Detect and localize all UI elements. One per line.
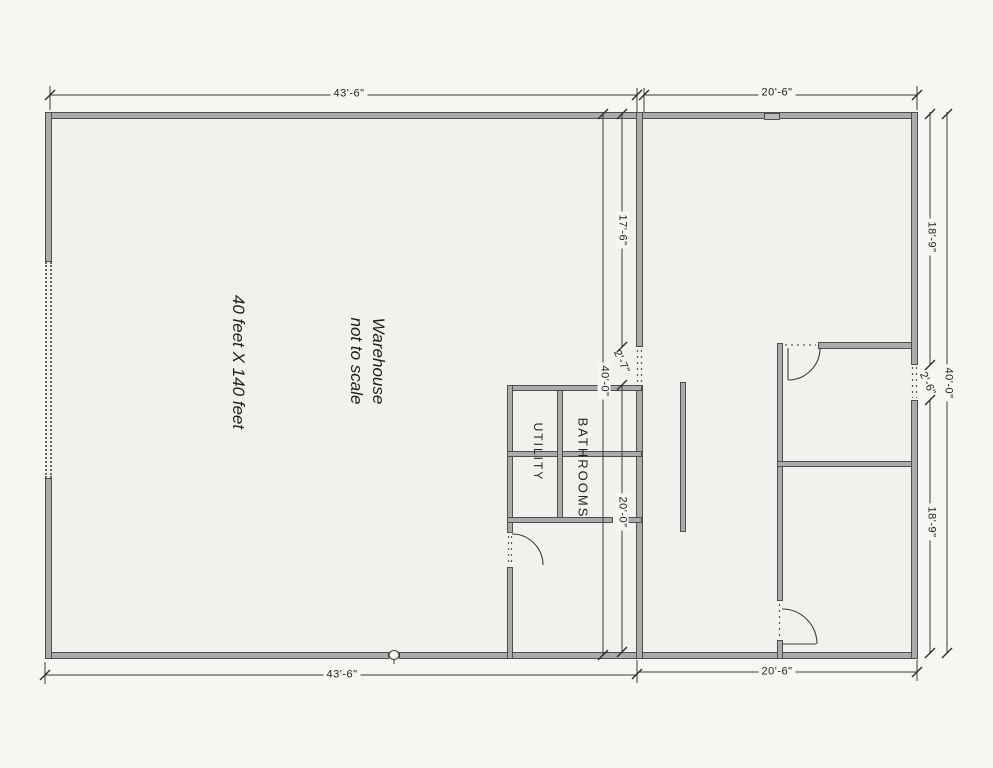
panel-marker xyxy=(764,113,780,120)
wall-office-vertical xyxy=(777,343,783,601)
wall-bathroom-top xyxy=(507,385,642,391)
dim-label-center-lower: 20'-0" xyxy=(616,493,629,530)
wall-exterior-bottom-right xyxy=(399,652,918,659)
wall-office-vertical-stub xyxy=(777,640,783,659)
wall-office-middle xyxy=(777,461,912,467)
wall-exterior-right-upper xyxy=(911,112,918,365)
warehouse-title-block: Warehouse not to scale xyxy=(345,318,389,405)
warehouse-size-label: 40 feet X 140 feet xyxy=(227,295,249,429)
warehouse-title: Warehouse xyxy=(367,318,389,405)
wall-exterior-left-upper xyxy=(45,112,52,262)
wall-exterior-left-opening xyxy=(45,262,52,478)
dim-label-center-upper: 17'-6" xyxy=(616,211,629,248)
dim-label-bottom-left: 43'-6" xyxy=(323,669,360,682)
wall-exterior-left-lower xyxy=(45,478,52,659)
wall-corridor-freestanding xyxy=(680,382,686,532)
wall-exterior-right-lower xyxy=(911,400,918,659)
wall-exterior-bottom-left xyxy=(45,652,389,659)
warehouse-subtitle: not to scale xyxy=(345,318,367,405)
dim-label-top-right: 20'-6" xyxy=(758,87,795,100)
wall-bathroom-left-upper xyxy=(507,385,513,533)
dim-label-bottom-right: 20'-6" xyxy=(758,666,795,679)
wall-bathroom-middle xyxy=(507,451,642,457)
wall-bathroom-bottom-stub xyxy=(627,517,642,523)
room-label-bathrooms: BATHROOMS xyxy=(576,418,591,519)
dim-label-right-overall: 40'-0" xyxy=(942,364,955,401)
dim-label-right-lower: 18'-9" xyxy=(925,503,938,540)
wall-office-top xyxy=(818,342,912,349)
wall-utility-divider xyxy=(557,390,563,518)
floor-plan-drawing: 43'-6" 20'-6" 43'-6" 20'-6" 17'-6" 40'-0… xyxy=(0,0,993,768)
wall-center-partition-upper xyxy=(636,112,643,347)
dim-label-right-door: 2'-6" xyxy=(915,367,940,400)
wall-exterior-top xyxy=(45,112,918,119)
wall-bathroom-left-lower xyxy=(507,567,513,659)
dim-label-right-upper: 18'-9" xyxy=(925,218,938,255)
dim-label-center-overall: 40'-0" xyxy=(598,362,611,399)
wall-bathroom-bottom xyxy=(507,517,613,523)
dim-label-top-left: 43'-6" xyxy=(330,88,367,101)
plan-interior xyxy=(45,112,918,659)
room-label-utility: UTILITY xyxy=(531,423,545,482)
